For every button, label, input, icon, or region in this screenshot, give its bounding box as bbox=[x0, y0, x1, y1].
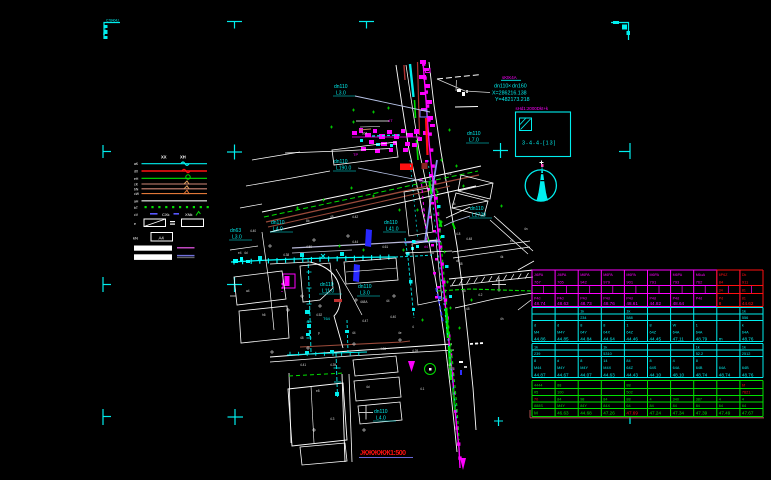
svg-text:1k: 1k bbox=[580, 310, 584, 314]
svg-text:556: 556 bbox=[742, 316, 748, 320]
svg-text:911: 911 bbox=[742, 280, 749, 285]
svg-text:8: 8 bbox=[719, 301, 722, 306]
svg-text:52.2: 52.2 bbox=[696, 352, 703, 356]
svg-text:4.41: 4.41 bbox=[300, 363, 306, 367]
svg-text:88: 88 bbox=[626, 398, 630, 402]
svg-text:979: 979 bbox=[603, 280, 610, 285]
svg-text:767: 767 bbox=[534, 280, 541, 285]
svg-text:8b: 8b bbox=[306, 219, 310, 223]
svg-text:1k: 1k bbox=[626, 310, 630, 314]
svg-text:4k: 4k bbox=[500, 255, 504, 259]
svg-text:#5: #5 bbox=[534, 391, 538, 395]
svg-text:4: 4 bbox=[412, 325, 414, 329]
svg-text:04X: 04X bbox=[603, 331, 610, 335]
svg-text:M6PA: M6PA bbox=[626, 273, 636, 277]
svg-text:234: 234 bbox=[580, 316, 586, 320]
svg-text:M6PA: M6PA bbox=[580, 273, 590, 277]
svg-text:M4Y: M4Y bbox=[557, 366, 565, 370]
svg-text:48: 48 bbox=[466, 307, 470, 311]
svg-text:P4d: P4d bbox=[626, 297, 632, 301]
svg-text:4.1: 4.1 bbox=[420, 387, 425, 391]
svg-text:4.61: 4.61 bbox=[382, 245, 388, 249]
svg-text:64: 64 bbox=[742, 404, 746, 408]
svg-text:64Z: 64Z bbox=[626, 331, 633, 335]
svg-text:48.64: 48.64 bbox=[673, 301, 685, 306]
svg-text:4.52: 4.52 bbox=[316, 313, 322, 317]
svg-text:M44: M44 bbox=[534, 366, 541, 370]
svg-text:1k: 1k bbox=[603, 346, 607, 350]
svg-text:48.74: 48.74 bbox=[696, 373, 708, 378]
svg-text:48.73: 48.73 bbox=[580, 301, 592, 306]
svg-text:4.47: 4.47 bbox=[362, 319, 368, 323]
svg-text:aH: aH bbox=[134, 199, 139, 203]
svg-text:8: 8 bbox=[534, 359, 536, 363]
svg-text:L3.0: L3.0 bbox=[360, 291, 370, 297]
svg-text:48.76: 48.76 bbox=[742, 373, 754, 378]
svg-text:47.69: 47.69 bbox=[626, 411, 638, 416]
svg-text:8: 8 bbox=[580, 324, 582, 328]
svg-text:e4: e4 bbox=[238, 251, 242, 255]
svg-text:e4: e4 bbox=[510, 239, 514, 243]
svg-text:4d: 4d bbox=[366, 385, 370, 389]
svg-text:Ji6PA: Ji6PA bbox=[557, 273, 567, 277]
svg-text:M4Y: M4Y bbox=[557, 404, 565, 408]
svg-text:7621: 7621 bbox=[742, 391, 750, 395]
svg-text:8: 8 bbox=[650, 359, 652, 363]
svg-text:793: 793 bbox=[673, 280, 680, 285]
svg-text:C78404J: C78404J bbox=[106, 19, 119, 23]
svg-text:4.40: 4.40 bbox=[250, 229, 256, 233]
svg-text:cW: cW bbox=[134, 192, 140, 196]
svg-text:3-4-4-[13]: 3-4-4-[13] bbox=[522, 141, 556, 147]
svg-text:44.07: 44.07 bbox=[580, 373, 592, 378]
svg-text:4.40: 4.40 bbox=[390, 315, 396, 319]
svg-text:P4d: P4d bbox=[603, 297, 609, 301]
svg-text:14: 14 bbox=[603, 359, 607, 363]
svg-text:M: M bbox=[534, 411, 538, 416]
svg-text:dn110: dn110 bbox=[374, 409, 388, 415]
svg-text:791: 791 bbox=[650, 280, 657, 285]
svg-text:4.38: 4.38 bbox=[283, 253, 289, 257]
svg-text:P4d: P4d bbox=[580, 297, 586, 301]
svg-text:d: d bbox=[534, 324, 536, 328]
svg-text:48.10: 48.10 bbox=[673, 373, 685, 378]
svg-text:44.82: 44.82 bbox=[650, 301, 662, 306]
svg-text:L7.0: L7.0 bbox=[469, 138, 479, 144]
svg-text:bN: bN bbox=[134, 187, 139, 191]
svg-text:kN: kN bbox=[133, 236, 138, 241]
svg-text:64B: 64B bbox=[742, 366, 749, 370]
svg-text:88: 88 bbox=[557, 384, 561, 388]
svg-text:04Y: 04Y bbox=[580, 331, 587, 335]
svg-text:Ji6PA: Ji6PA bbox=[534, 273, 544, 277]
svg-text:4: 4 bbox=[650, 398, 652, 402]
svg-text:dn110: dn110 bbox=[494, 84, 508, 90]
svg-text:44.86: 44.86 bbox=[534, 337, 546, 342]
svg-text:1k: 1k bbox=[742, 310, 746, 314]
svg-text:P4d: P4d bbox=[696, 297, 702, 301]
svg-text:P4d: P4d bbox=[673, 297, 679, 301]
svg-text:P4d: P4d bbox=[650, 297, 656, 301]
svg-text:64: 64 bbox=[719, 404, 723, 408]
svg-text:L3.0: L3.0 bbox=[232, 235, 242, 241]
svg-text:8: 8 bbox=[603, 324, 605, 328]
svg-text:64A: 64A bbox=[673, 366, 680, 370]
svg-text:98: 98 bbox=[580, 398, 584, 402]
svg-text:340: 340 bbox=[673, 398, 679, 402]
svg-text:1: 1 bbox=[626, 324, 628, 328]
svg-text:448A: 448A bbox=[360, 300, 368, 304]
svg-text:44.87: 44.87 bbox=[534, 373, 546, 378]
svg-text:dn160: dn160 bbox=[512, 84, 527, 90]
svg-text:M6PA: M6PA bbox=[603, 273, 613, 277]
svg-text:88: 88 bbox=[626, 384, 630, 388]
svg-text:1k: 1k bbox=[534, 346, 538, 350]
svg-text:dn110: dn110 bbox=[358, 284, 372, 290]
svg-text:dd: dd bbox=[456, 259, 460, 263]
svg-text:X=286216.138: X=286216.138 bbox=[492, 91, 527, 97]
svg-text:48: 48 bbox=[300, 336, 304, 340]
svg-text:dY: dY bbox=[421, 209, 426, 213]
svg-text:A4: A4 bbox=[159, 235, 165, 240]
svg-text:44.68: 44.68 bbox=[580, 411, 592, 416]
svg-text:M4Y: M4Y bbox=[557, 331, 565, 335]
svg-text:48.61: 48.61 bbox=[626, 301, 638, 306]
svg-text:8: 8 bbox=[650, 324, 652, 328]
svg-text:dn110: dn110 bbox=[467, 131, 481, 137]
svg-text:e8: e8 bbox=[316, 389, 320, 393]
svg-text:M6PA: M6PA bbox=[673, 273, 683, 277]
svg-text:84: 84 bbox=[696, 404, 700, 408]
svg-text:47.67: 47.67 bbox=[742, 411, 754, 416]
svg-text:47.39: 47.39 bbox=[696, 411, 708, 416]
svg-text:44: 44 bbox=[448, 363, 452, 367]
svg-text:sHd1:2000Dkt+k: sHd1:2000Dkt+k bbox=[516, 106, 549, 111]
svg-text:888S: 888S bbox=[534, 404, 543, 408]
svg-text:m: m bbox=[719, 337, 723, 342]
svg-text:44.64: 44.64 bbox=[603, 337, 615, 342]
svg-text:4444: 4444 bbox=[534, 384, 542, 388]
svg-text:84: 84 bbox=[603, 398, 607, 402]
svg-text:48.63: 48.63 bbox=[557, 301, 569, 306]
svg-text:81: 81 bbox=[742, 289, 746, 293]
svg-text:dn110: dn110 bbox=[320, 282, 334, 288]
svg-text:4.36: 4.36 bbox=[380, 347, 386, 351]
svg-text:765: 765 bbox=[557, 280, 564, 285]
svg-text:CXk: CXk bbox=[162, 212, 170, 217]
svg-text:34: 34 bbox=[719, 289, 723, 293]
svg-text:4: 4 bbox=[719, 398, 721, 402]
svg-text:48.76: 48.76 bbox=[603, 301, 615, 306]
svg-text:dn110: dn110 bbox=[384, 220, 398, 226]
svg-text:4e: 4e bbox=[398, 331, 402, 335]
svg-text:XNk: XNk bbox=[185, 212, 193, 217]
svg-text:T64: T64 bbox=[323, 316, 331, 321]
svg-text:44.45: 44.45 bbox=[650, 337, 662, 342]
svg-text:64A: 64A bbox=[719, 366, 726, 370]
svg-text:a4: a4 bbox=[246, 289, 250, 293]
svg-text:aK: aK bbox=[134, 162, 139, 166]
svg-text:604: 604 bbox=[362, 132, 368, 136]
svg-text:sKtK4A: sKtK4A bbox=[502, 75, 517, 80]
svg-text:4.44: 4.44 bbox=[352, 240, 358, 244]
svg-text:64: 64 bbox=[626, 404, 630, 408]
svg-text:1k: 1k bbox=[696, 346, 700, 350]
svg-text:M4X: M4X bbox=[603, 366, 611, 370]
svg-text:84: 84 bbox=[650, 404, 654, 408]
svg-text:4.8: 4.8 bbox=[456, 232, 461, 236]
svg-text:1k: 1k bbox=[742, 346, 746, 350]
svg-text:L4.0: L4.0 bbox=[376, 416, 386, 422]
svg-text:d: d bbox=[557, 359, 559, 363]
svg-text:XX: XX bbox=[161, 155, 167, 160]
svg-text:6P6Z: 6P6Z bbox=[719, 273, 728, 277]
svg-text:64B: 64B bbox=[696, 366, 703, 370]
svg-text:Dk: Dk bbox=[742, 273, 747, 277]
svg-text:dn110: dn110 bbox=[334, 84, 348, 90]
svg-text:4: 4 bbox=[742, 398, 744, 402]
svg-text:47.11: 47.11 bbox=[673, 337, 685, 342]
svg-text:p: p bbox=[318, 331, 320, 335]
svg-text:L2720: L2720 bbox=[472, 213, 486, 219]
svg-text:64S: 64S bbox=[650, 366, 657, 370]
svg-text:84: 84 bbox=[719, 280, 724, 285]
svg-text:bT: bT bbox=[134, 206, 138, 210]
svg-text:44.10: 44.10 bbox=[650, 373, 662, 378]
svg-text:M4: M4 bbox=[534, 331, 539, 335]
svg-text:4.50: 4.50 bbox=[306, 245, 312, 249]
svg-text:5310: 5310 bbox=[603, 352, 611, 356]
svg-text:942: 942 bbox=[580, 280, 587, 285]
svg-text:4.3: 4.3 bbox=[330, 417, 335, 421]
svg-text:70: 70 bbox=[534, 398, 538, 402]
svg-text:47.34: 47.34 bbox=[673, 411, 685, 416]
svg-text:64Z: 64Z bbox=[626, 366, 633, 370]
svg-text:h6: h6 bbox=[262, 313, 266, 317]
svg-text:64A: 64A bbox=[696, 331, 703, 335]
svg-text:84X: 84X bbox=[603, 404, 610, 408]
svg-text:4d: 4d bbox=[462, 289, 466, 293]
svg-text:2512: 2512 bbox=[742, 352, 750, 356]
svg-text:44.62: 44.62 bbox=[742, 301, 754, 306]
svg-text:4.28: 4.28 bbox=[412, 349, 418, 353]
svg-text:L4.0: L4.0 bbox=[273, 227, 283, 233]
svg-text:44.84: 44.84 bbox=[580, 337, 592, 342]
svg-text:44: 44 bbox=[386, 299, 390, 303]
svg-text:d: d bbox=[557, 324, 559, 328]
svg-text:1: 1 bbox=[696, 324, 698, 328]
svg-text:387: 387 bbox=[696, 398, 702, 402]
svg-text:4.42: 4.42 bbox=[352, 215, 358, 219]
svg-text:eH: eH bbox=[134, 177, 139, 181]
svg-text:46.63: 46.63 bbox=[557, 411, 569, 416]
svg-text:47.26: 47.26 bbox=[603, 411, 615, 416]
svg-text:XH: XH bbox=[180, 155, 186, 160]
svg-text:901: 901 bbox=[626, 280, 633, 285]
svg-text:Pd: Pd bbox=[719, 297, 723, 301]
svg-text:48.79: 48.79 bbox=[696, 337, 708, 342]
svg-text:84: 84 bbox=[673, 404, 677, 408]
svg-text:dn110: dn110 bbox=[334, 159, 348, 165]
svg-text:48.76: 48.76 bbox=[742, 337, 754, 342]
svg-text:-478: -478 bbox=[448, 367, 455, 371]
svg-text:8: 8 bbox=[580, 359, 582, 363]
svg-text:L3.0: L3.0 bbox=[336, 91, 346, 97]
svg-text:TP: TP bbox=[353, 152, 358, 157]
svg-text:4d: 4d bbox=[244, 251, 248, 255]
svg-text:502: 502 bbox=[626, 391, 632, 395]
svg-text:48.74: 48.74 bbox=[534, 301, 546, 306]
svg-text:W: W bbox=[673, 324, 677, 328]
svg-text:4n: 4n bbox=[524, 227, 528, 231]
svg-text:762: 762 bbox=[696, 280, 703, 285]
svg-text:44.85: 44.85 bbox=[557, 337, 569, 342]
svg-text:4h: 4h bbox=[500, 317, 504, 321]
svg-text:84Y: 84Y bbox=[580, 404, 587, 408]
svg-text:dn110: dn110 bbox=[271, 220, 285, 226]
svg-text:L41.0: L41.0 bbox=[386, 227, 399, 233]
svg-text:84: 84 bbox=[626, 359, 630, 363]
svg-text:48: 48 bbox=[330, 215, 334, 219]
svg-text:44: 44 bbox=[352, 331, 356, 335]
svg-text:4.48: 4.48 bbox=[466, 237, 472, 241]
svg-text:4: 4 bbox=[673, 359, 675, 363]
svg-text:Y=482173.218: Y=482173.218 bbox=[495, 97, 530, 103]
svg-text:M6PA: M6PA bbox=[650, 273, 660, 277]
svg-text:44.63: 44.63 bbox=[603, 373, 615, 378]
svg-text:dT: dT bbox=[388, 118, 393, 123]
svg-text:588: 588 bbox=[626, 316, 632, 320]
svg-text:L190.0: L190.0 bbox=[336, 166, 352, 172]
svg-text:64A: 64A bbox=[673, 331, 680, 335]
svg-text:48: 48 bbox=[459, 262, 463, 266]
svg-text:dX: dX bbox=[134, 170, 139, 174]
svg-text:239: 239 bbox=[534, 352, 540, 356]
svg-text:M6uA: M6uA bbox=[696, 273, 706, 277]
svg-text:64Z: 64Z bbox=[650, 331, 657, 335]
svg-text:e: e bbox=[134, 222, 136, 226]
svg-text:81: 81 bbox=[742, 297, 746, 301]
svg-text:47.24: 47.24 bbox=[650, 411, 662, 416]
svg-text:44.46: 44.46 bbox=[626, 337, 638, 342]
svg-text:k: k bbox=[742, 324, 744, 328]
svg-text:d4: d4 bbox=[424, 245, 428, 249]
svg-text:4.39: 4.39 bbox=[330, 363, 336, 367]
svg-text:4.6: 4.6 bbox=[447, 172, 452, 176]
svg-text:84: 84 bbox=[557, 398, 561, 402]
svg-text:100: 100 bbox=[557, 391, 563, 395]
svg-text:47.49: 47.49 bbox=[719, 411, 731, 416]
svg-text:48.74: 48.74 bbox=[719, 373, 731, 378]
svg-text:×: × bbox=[508, 84, 511, 90]
svg-text:44.67: 44.67 bbox=[557, 373, 569, 378]
svg-text:8: 8 bbox=[696, 359, 698, 363]
svg-text:dn63: dn63 bbox=[230, 228, 241, 234]
svg-text:64A: 64A bbox=[742, 331, 749, 335]
svg-text:P4d: P4d bbox=[557, 297, 563, 301]
svg-text:ЖЖЖЖЖ1:500: ЖЖЖЖЖ1:500 bbox=[360, 450, 406, 457]
svg-text:44.43: 44.43 bbox=[626, 373, 638, 378]
svg-text:L11.0: L11.0 bbox=[322, 289, 334, 295]
svg-text:M4Y: M4Y bbox=[580, 366, 588, 370]
svg-text:4.2: 4.2 bbox=[478, 293, 483, 297]
svg-text:dn110: dn110 bbox=[470, 206, 484, 212]
svg-text:P4d: P4d bbox=[534, 297, 540, 301]
